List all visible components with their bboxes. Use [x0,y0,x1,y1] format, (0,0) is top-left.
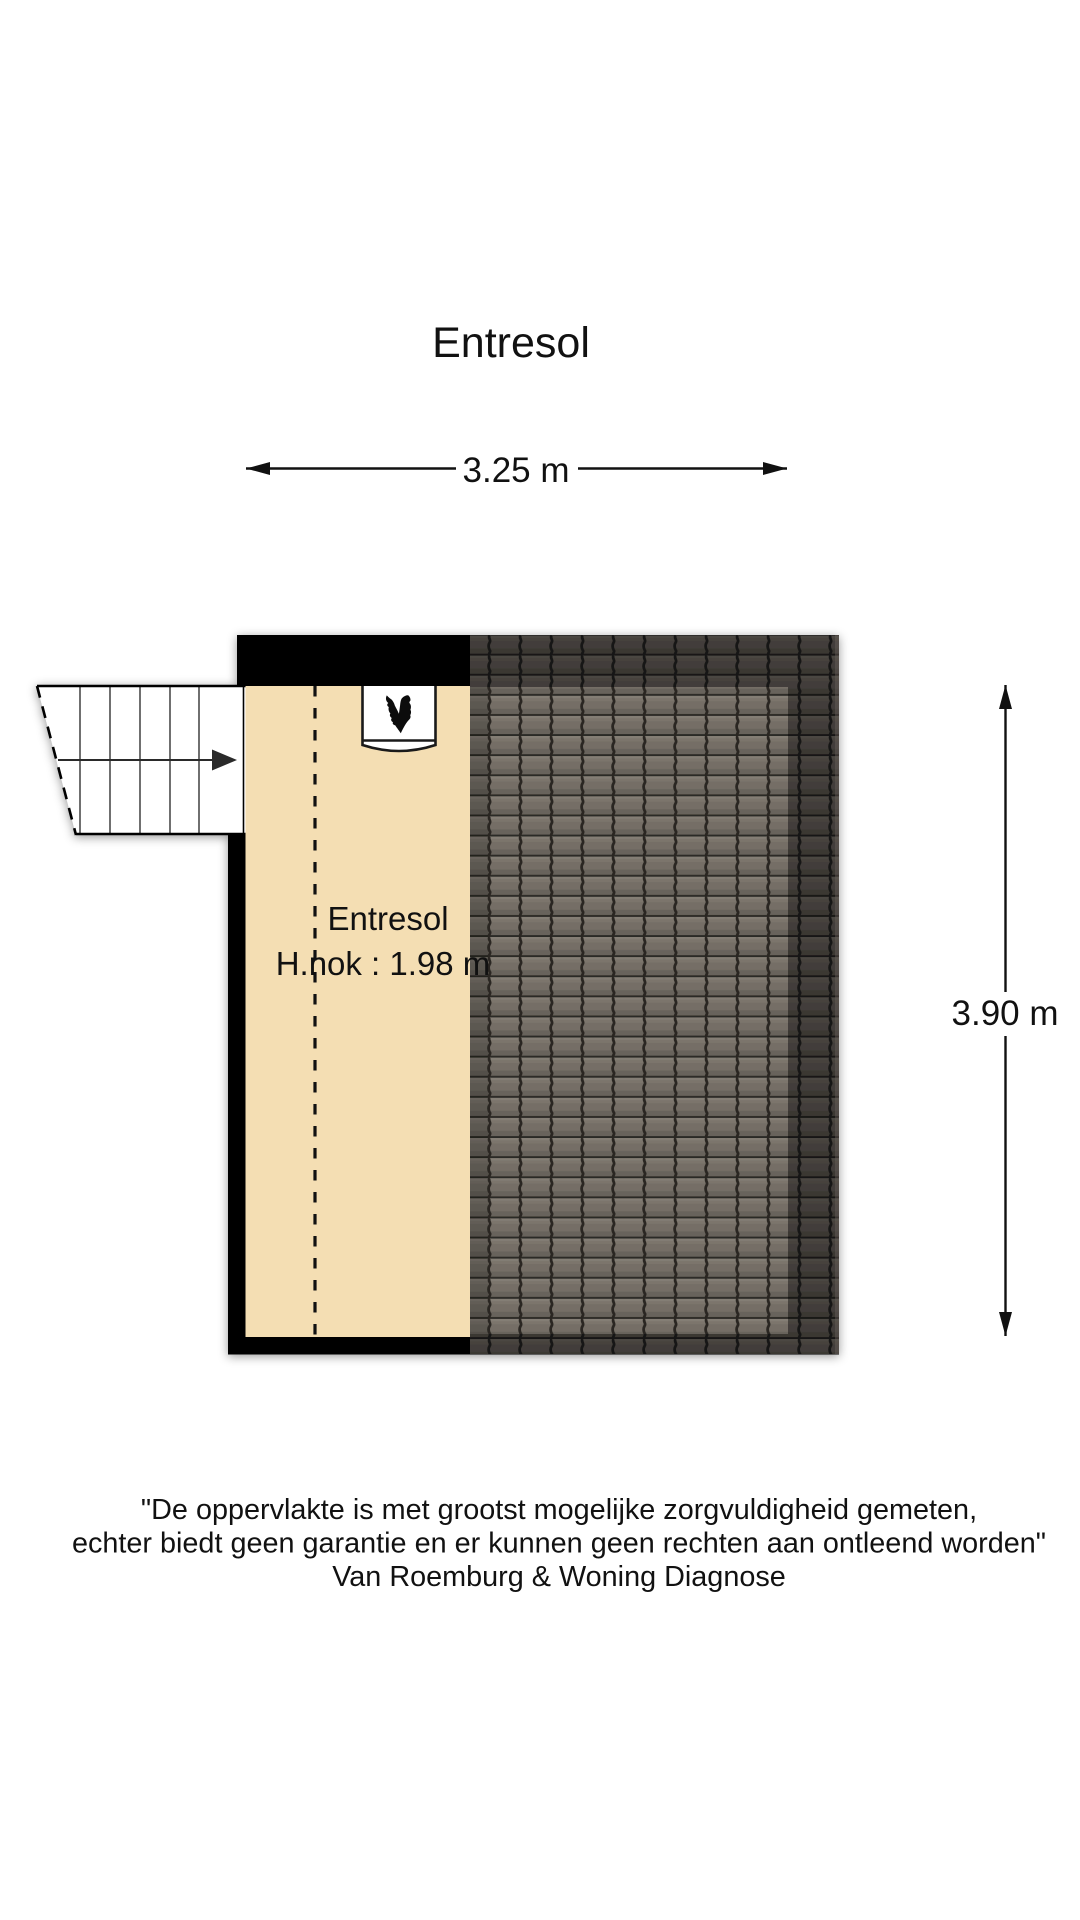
svg-text:echter biedt geen garantie en: echter biedt geen garantie en er kunnen … [72,1528,1046,1560]
svg-text:H.nok : 1.98 m: H.nok : 1.98 m [276,945,491,982]
svg-text:3.25 m: 3.25 m [463,451,570,490]
svg-text:Entresol: Entresol [432,319,590,367]
svg-text:"De oppervlakte is met grootst: "De oppervlakte is met grootst mogelijke… [141,1494,977,1526]
svg-text:Van Roemburg & Woning Diagnose: Van Roemburg & Woning Diagnose [332,1561,786,1593]
svg-text:3.90 m: 3.90 m [952,994,1059,1033]
svg-text:Entresol: Entresol [327,900,448,937]
